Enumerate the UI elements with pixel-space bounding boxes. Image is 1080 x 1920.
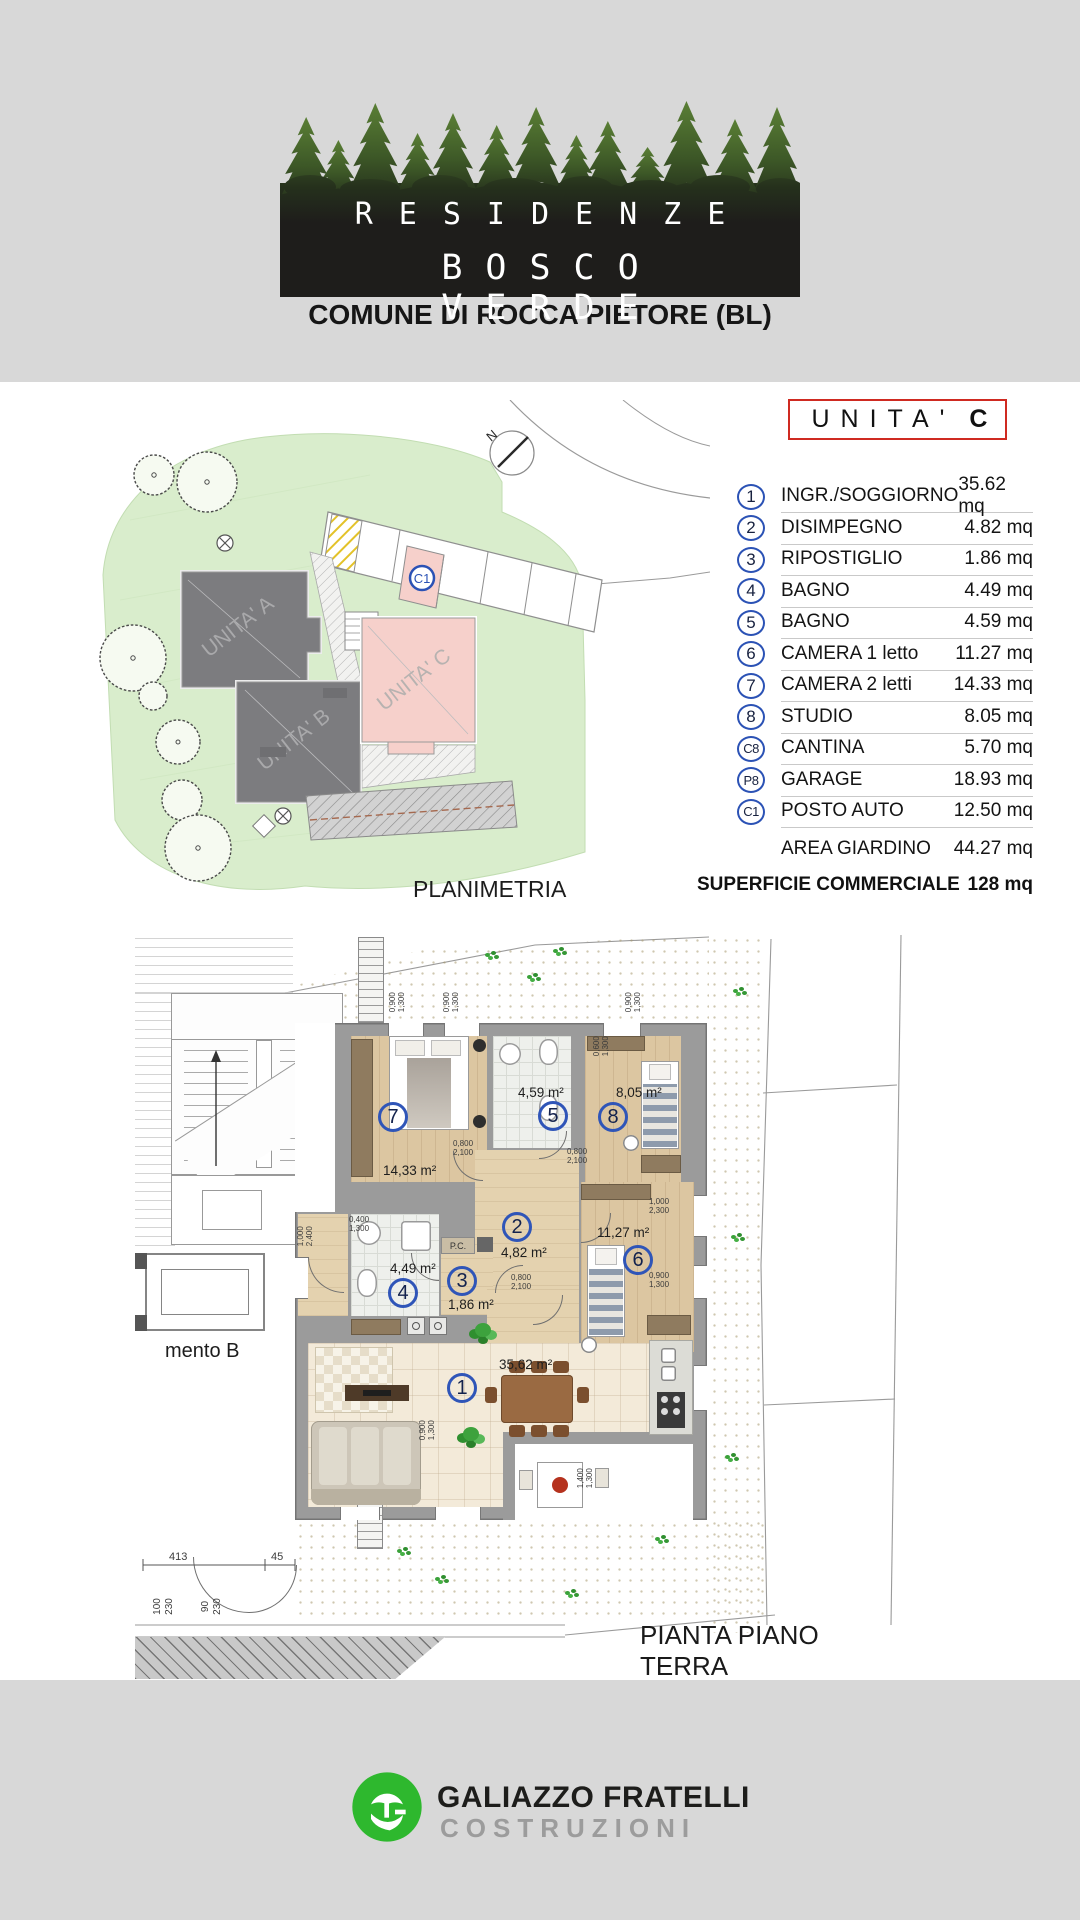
siteplan-caption: PLANIMETRIA [413, 876, 566, 903]
room-number-badge: 3 [737, 547, 765, 573]
single-bed-room6 [587, 1245, 625, 1337]
room-3-badge: 3 [447, 1266, 477, 1296]
plant-icon [463, 1427, 479, 1441]
plant-icon [475, 1323, 491, 1337]
total-value: 128 mq [968, 874, 1033, 896]
neighbour-balcony [145, 1253, 265, 1331]
room-label: CANTINA [781, 737, 864, 759]
neighbour-unit-label: mento B [165, 1340, 239, 1363]
room-7-area: 14,33 m² [383, 1163, 436, 1178]
room-area-value: 8.05 mq [964, 706, 1033, 728]
room-5-badge: 5 [538, 1101, 568, 1131]
legend-row: 1 INGR./SOGGIORNO 35.62 mq [737, 481, 1033, 513]
stall-c1-label: C1 [414, 571, 431, 586]
dim-label: 0,400 1,300 [349, 1215, 369, 1233]
room-2-badge: 2 [502, 1212, 532, 1242]
tv-wall-tiles [315, 1347, 393, 1413]
legend-total: SUPERFICIE COMMERCIALE 128 mq [737, 861, 1033, 896]
dim-label: 0,600 1,300 [592, 1036, 610, 1056]
dim-label: 0,900 1,300 [624, 992, 642, 1012]
dim-label: 100 230 [152, 1598, 175, 1615]
room-2-area: 4,82 m² [501, 1245, 547, 1260]
dining-table [501, 1375, 573, 1423]
room-label: BAGNO [781, 611, 850, 633]
room-8-badge: 8 [598, 1102, 628, 1132]
toilet-icon [539, 1039, 558, 1065]
company-tagline: COSTRUZIONI [440, 1813, 696, 1844]
unit-title-prefix: UNITA' [806, 405, 956, 434]
company-name: GALIAZZO FRATELLI [437, 1781, 750, 1815]
room-area-value: 4.59 mq [964, 611, 1033, 633]
legend-row: 4 BAGNO 4.49 mq [737, 576, 1033, 608]
room-number-badge [737, 836, 765, 862]
room-area-value: 18.93 mq [954, 769, 1033, 791]
room-area-value: 1.86 mq [964, 548, 1033, 570]
legend-row: C8 CANTINA 5.70 mq [737, 733, 1033, 765]
legend-row: 8 STUDIO 8.05 mq [737, 702, 1033, 734]
room-4-area: 4,49 m² [390, 1261, 436, 1276]
legend-row: 7 CAMERA 2 letti 14.33 mq [737, 670, 1033, 702]
legend-row: 6 CAMERA 1 letto 11.27 mq [737, 639, 1033, 671]
room-area-value: 4.82 mq [964, 517, 1033, 539]
room-area-value: 5.70 mq [964, 737, 1033, 759]
room-label: GARAGE [781, 769, 862, 791]
room-number-badge: 7 [737, 673, 765, 699]
stove-icon [657, 1392, 685, 1428]
dim-label: 0,900 1,300 [442, 992, 460, 1012]
dim-label: 1,000 2,400 [296, 1226, 314, 1246]
brochure-page: RESIDENZE BOSCO VERDE COMUNE DI ROCCA PI… [0, 0, 1080, 1920]
room-legend: 1 INGR./SOGGIORNO 35.62 mq 2 DISIMPEGNO … [737, 481, 1033, 865]
tv-cabinet [345, 1385, 409, 1401]
dim-label: 1,000 2,300 [649, 1197, 669, 1215]
room-7-badge: 7 [378, 1102, 408, 1132]
room-number-badge: 1 [737, 484, 765, 510]
unit-title-box: UNITA' C [788, 399, 1007, 440]
room-label: RIPOSTIGLIO [781, 548, 902, 570]
room-label: CAMERA 2 letti [781, 674, 912, 696]
room-number-badge: 4 [737, 578, 765, 604]
room-5-area: 4,59 m² [518, 1085, 564, 1100]
room-label: DISIMPEGNO [781, 517, 902, 539]
shower-icon [401, 1221, 431, 1251]
room-4-badge: 4 [388, 1278, 418, 1308]
legend-row: 5 BAGNO 4.59 mq [737, 607, 1033, 639]
room-number-badge: P8 [737, 767, 765, 793]
dim-label: 0,800 2,100 [567, 1147, 587, 1165]
sofa [311, 1421, 421, 1505]
brand-title-line2: BOSCO VERDE [280, 248, 800, 328]
room-number-badge: 5 [737, 610, 765, 636]
room-area-value: 14.33 mq [954, 674, 1033, 696]
dim-label: 0,900 1,300 [418, 1420, 436, 1440]
toilet-icon [357, 1269, 377, 1297]
room-label: STUDIO [781, 706, 853, 728]
dim-label: 90 230 [200, 1598, 223, 1615]
room-1-badge: 1 [447, 1373, 477, 1403]
room-label: CAMERA 1 letto [781, 643, 918, 665]
brand-title-line1: RESIDENZE [280, 197, 800, 232]
legend-row: 3 RIPOSTIGLIO 1.86 mq [737, 544, 1033, 576]
floor-plan: mento B [135, 935, 907, 1665]
patio [503, 1432, 693, 1520]
room-number-badge: 8 [737, 704, 765, 730]
dim-label: 0,800 2,100 [511, 1273, 531, 1291]
room-area-value: 44.27 mq [954, 838, 1033, 860]
room-number-badge: C8 [737, 736, 765, 762]
boiler-label: P.C. [450, 1241, 466, 1251]
legend-row: C1 POSTO AUTO 12.50 mq [737, 796, 1033, 828]
floorplan-caption: PIANTA PIANO TERRA [640, 1633, 906, 1669]
room-label: AREA GIARDINO [781, 838, 931, 860]
legend-row: P8 GARAGE 18.93 mq [737, 765, 1033, 797]
room-3-area: 1,86 m² [448, 1297, 494, 1312]
total-label: SUPERFICIE COMMERCIALE [697, 874, 960, 896]
dim-label: 0,900 1,300 [649, 1271, 669, 1289]
room-6-area: 11,27 m² [597, 1225, 649, 1240]
room-area-value: 11.27 mq [955, 643, 1033, 665]
single-bed-studio [641, 1061, 679, 1149]
dim-label: 0,800 2,100 [453, 1139, 473, 1157]
room-label: BAGNO [781, 580, 850, 602]
dim-label: 45 [271, 1551, 283, 1564]
room-8-area: 8,05 m² [616, 1085, 662, 1100]
room-area-value: 4.49 mq [964, 580, 1033, 602]
room-label: INGR./SOGGIORNO [781, 485, 958, 507]
room-number-badge: C1 [737, 799, 765, 825]
dim-label: 0,900 1,300 [388, 992, 406, 1012]
legend-row: 2 DISIMPEGNO 4.82 mq [737, 513, 1033, 545]
room-label: POSTO AUTO [781, 800, 904, 822]
company-logo-icon [351, 1771, 423, 1843]
sink-icon [499, 1043, 521, 1065]
dim-label: 1,400 1,300 [576, 1468, 594, 1488]
room-number-badge: 6 [737, 641, 765, 667]
site-plan-graphic: C1 UNITA' A UNITA' B UNITA' C [70, 400, 710, 910]
room-1-area: 35,62 m² [499, 1357, 552, 1372]
kitchen-counter [649, 1340, 693, 1435]
dim-label: 413 [169, 1551, 187, 1564]
room-area-value: 12.50 mq [954, 800, 1033, 822]
unit-title-letter: C [969, 405, 987, 434]
room-number-badge: 2 [737, 515, 765, 541]
